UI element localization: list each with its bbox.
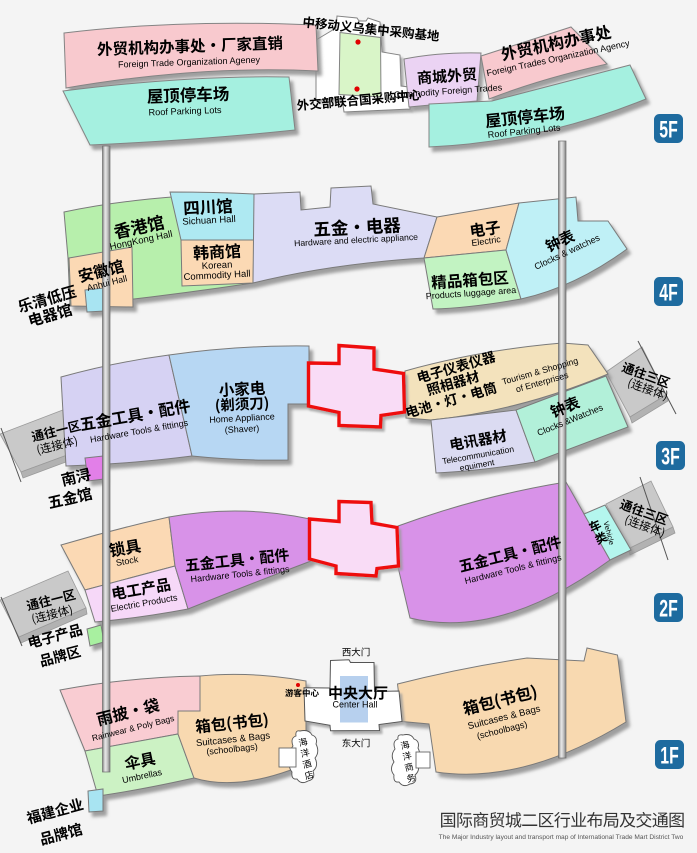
svg-text:4F: 4F	[659, 280, 677, 306]
svg-text:The Major Industry layout and: The Major Industry layout and transport …	[439, 834, 684, 841]
svg-text:(Shaver): (Shaver)	[225, 423, 260, 435]
svg-text:2F: 2F	[659, 596, 677, 622]
svg-text:3F: 3F	[661, 444, 679, 470]
svg-text:Center Hall: Center Hall	[332, 700, 377, 710]
svg-text:5F: 5F	[659, 117, 677, 143]
svg-text:1F: 1F	[660, 743, 678, 769]
